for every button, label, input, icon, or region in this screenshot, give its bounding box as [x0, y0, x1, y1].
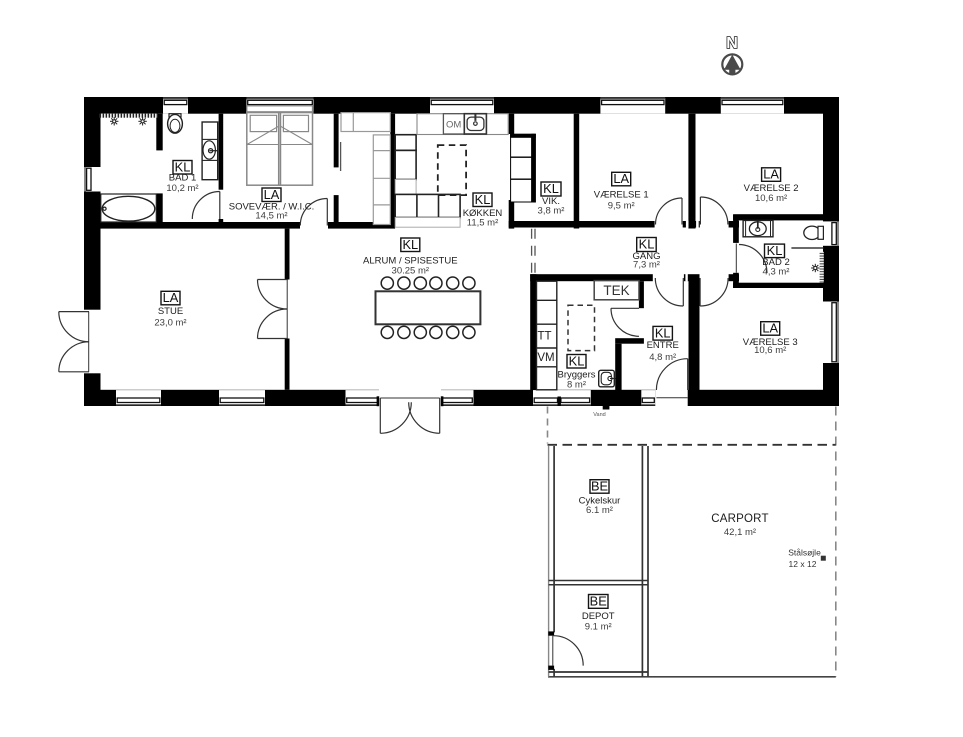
svg-text:BE: BE — [590, 594, 607, 609]
svg-text:10,6 m²: 10,6 m² — [755, 193, 787, 204]
svg-text:3,8 m²: 3,8 m² — [538, 206, 565, 217]
svg-text:Stålsøjle: Stålsøjle — [788, 547, 821, 557]
svg-text:4,8 m²: 4,8 m² — [649, 352, 676, 363]
svg-text:ENTRE: ENTRE — [647, 340, 679, 351]
svg-text:KL: KL — [475, 192, 491, 207]
svg-text:9.1 m²: 9.1 m² — [585, 622, 612, 633]
svg-text:LA: LA — [163, 290, 179, 305]
svg-text:23,0 m²: 23,0 m² — [154, 318, 186, 329]
svg-text:4,3 m²: 4,3 m² — [763, 266, 790, 277]
svg-text:KL: KL — [543, 181, 559, 196]
svg-text:7,3 m²: 7,3 m² — [633, 260, 660, 271]
svg-text:TT: TT — [537, 330, 551, 342]
svg-text:LA: LA — [613, 171, 629, 186]
svg-text:42,1 m²: 42,1 m² — [724, 527, 756, 538]
svg-text:6.1 m²: 6.1 m² — [586, 505, 613, 516]
svg-text:30.25 m²: 30.25 m² — [392, 265, 430, 276]
svg-text:9,5 m²: 9,5 m² — [608, 200, 635, 211]
svg-text:KL: KL — [655, 325, 671, 340]
svg-text:CARPORT: CARPORT — [711, 513, 768, 525]
svg-text:BE: BE — [591, 479, 608, 494]
svg-text:KL: KL — [402, 237, 418, 252]
svg-text:KL: KL — [569, 353, 585, 368]
svg-text:Vand: Vand — [593, 412, 605, 418]
svg-text:TEK: TEK — [603, 283, 629, 298]
svg-text:LA: LA — [264, 187, 280, 202]
svg-text:LA: LA — [763, 167, 779, 182]
svg-text:8 m²: 8 m² — [567, 379, 586, 390]
svg-text:10,6 m²: 10,6 m² — [754, 345, 786, 356]
svg-text:10,2 m²: 10,2 m² — [166, 183, 198, 194]
svg-text:VM: VM — [537, 352, 554, 364]
svg-text:11,5 m²: 11,5 m² — [467, 218, 499, 229]
svg-text:STUE: STUE — [158, 306, 183, 317]
svg-text:N: N — [726, 35, 738, 52]
svg-text:KL: KL — [639, 237, 655, 252]
svg-text:12 x 12: 12 x 12 — [789, 559, 817, 569]
svg-text:OM: OM — [446, 120, 461, 131]
svg-text:LA: LA — [762, 321, 778, 336]
svg-text:KL: KL — [767, 243, 783, 258]
svg-text:VÆRELSE 1: VÆRELSE 1 — [594, 189, 649, 200]
svg-text:14,5 m²: 14,5 m² — [255, 211, 287, 222]
